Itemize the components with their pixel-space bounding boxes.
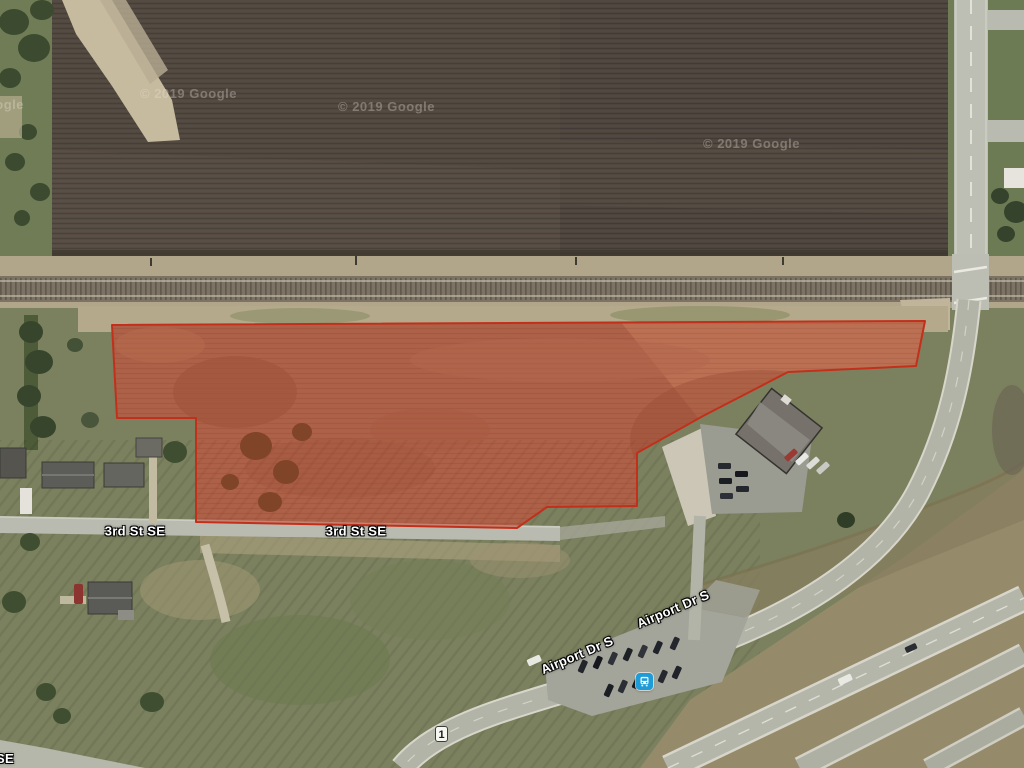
- satellite-imagery: [0, 0, 1024, 768]
- bus-icon: [639, 676, 650, 687]
- google-watermark-mid-left: © 2019 Google: [140, 86, 237, 101]
- parked-car-red: [74, 584, 83, 604]
- street-label-3rd-st-se-west: 3rd St SE: [105, 524, 166, 539]
- google-watermark-center: © 2019 Google: [338, 99, 435, 114]
- google-watermark-left-edge: © 2019 Google: [0, 97, 24, 112]
- transit-station-icon[interactable]: [636, 673, 653, 690]
- street-label-3rd-st-se-east: 3rd St SE: [326, 524, 387, 539]
- google-watermark-right: © 2019 Google: [703, 136, 800, 151]
- map-viewport[interactable]: 3rd St SE 3rd St SE Airport Dr S Airport…: [0, 0, 1024, 768]
- route-1-shield: 1: [435, 726, 448, 742]
- street-label-partial-se: SE: [0, 751, 14, 766]
- north-road: [954, 0, 1024, 268]
- plowed-field: [52, 0, 948, 258]
